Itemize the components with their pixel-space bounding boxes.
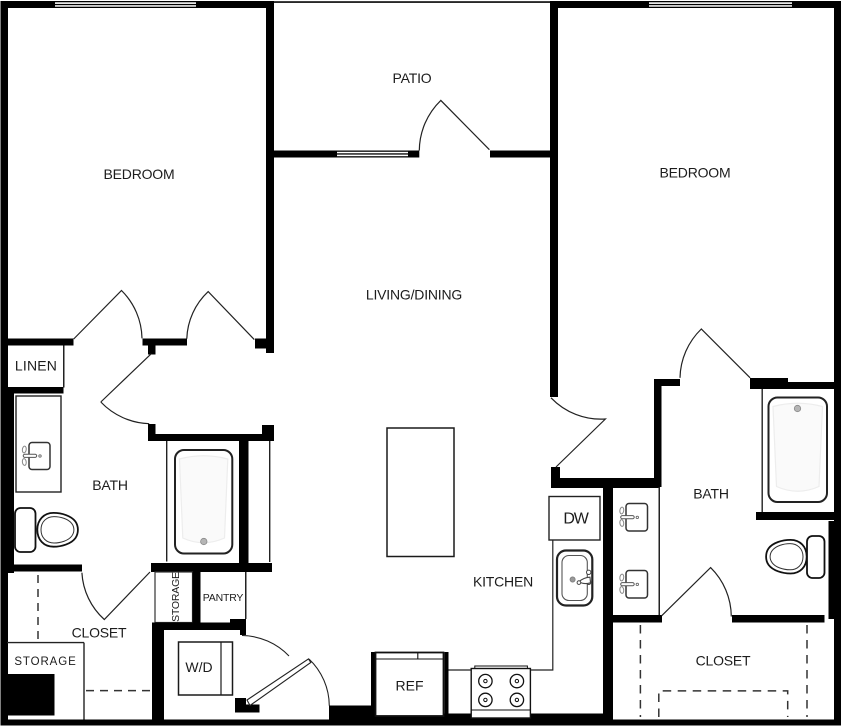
svg-text:BEDROOM: BEDROOM [104,166,175,182]
svg-text:BEDROOM: BEDROOM [660,165,731,181]
svg-text:STORAGE: STORAGE [170,572,182,622]
svg-text:LIVING/DINING: LIVING/DINING [366,287,462,303]
svg-text:KITCHEN: KITCHEN [473,574,533,590]
svg-text:STORAGE: STORAGE [14,656,76,668]
svg-text:DW: DW [563,511,589,528]
svg-text:BATH: BATH [693,486,729,502]
svg-text:CLOSET: CLOSET [72,624,127,640]
svg-text:REF: REF [396,677,424,693]
svg-text:PANTRY: PANTRY [203,592,244,604]
svg-text:W/D: W/D [185,659,212,675]
svg-text:LINEN: LINEN [15,358,57,374]
svg-text:PATIO: PATIO [393,70,432,86]
svg-text:BATH: BATH [92,477,128,493]
svg-text:CLOSET: CLOSET [696,653,751,669]
